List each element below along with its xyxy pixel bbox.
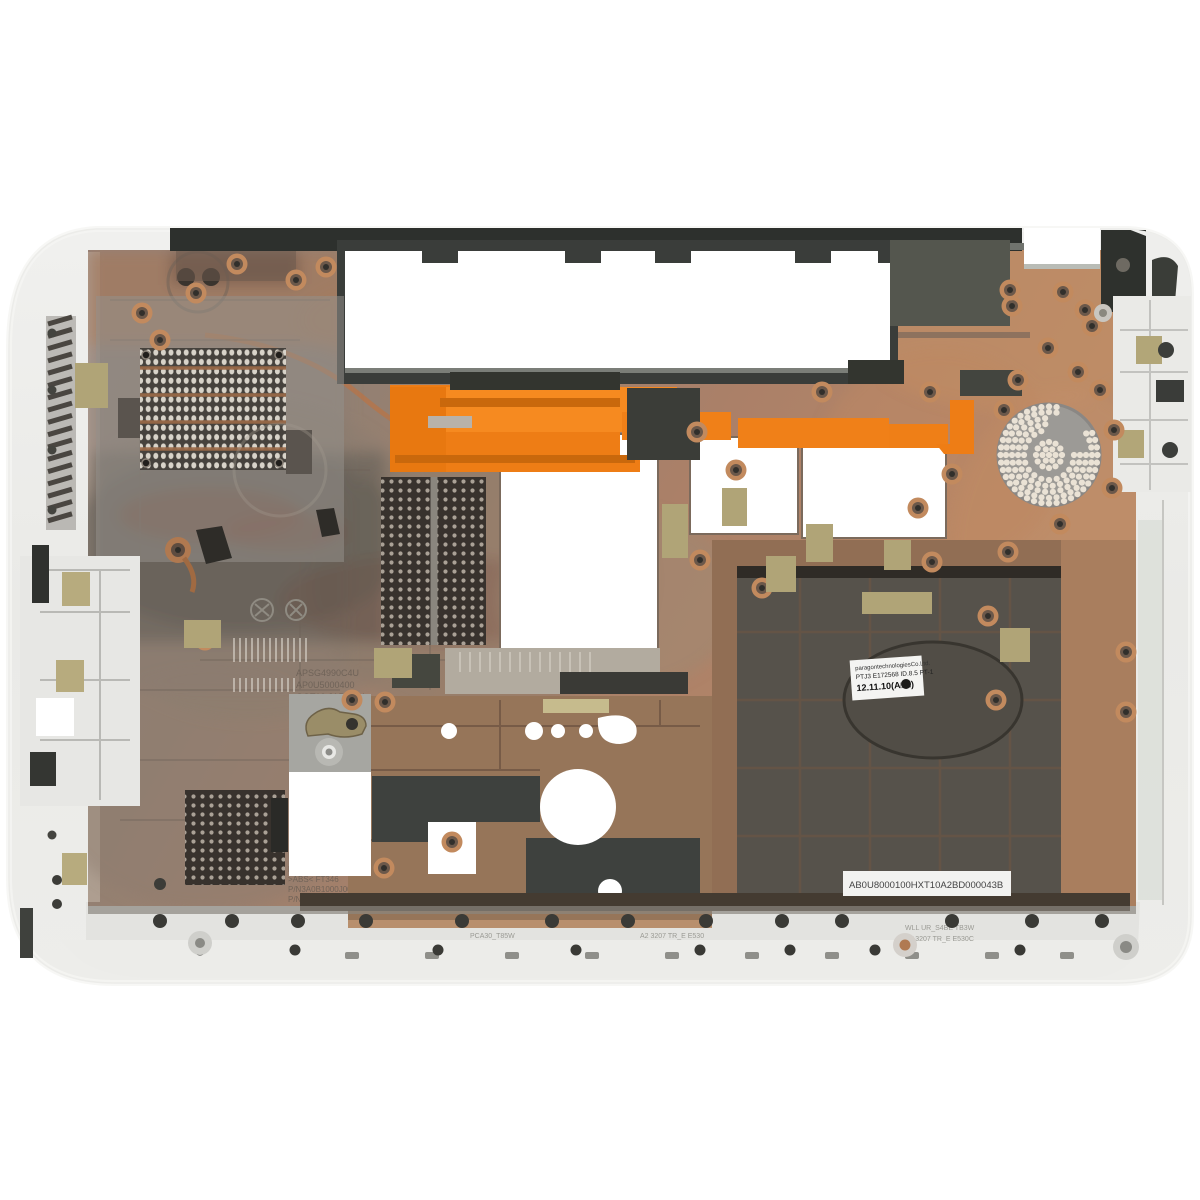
- svg-text:A2 3207 TR_E E530: A2 3207 TR_E E530: [640, 933, 704, 940]
- svg-text:AB0U8000100HXT10A2BD000043B: AB0U8000100HXT10A2BD000043B: [849, 880, 1003, 891]
- svg-text:>ABS< FT346: >ABS< FT346: [288, 875, 339, 884]
- svg-text:AP0U5000400: AP0U5000400: [296, 680, 355, 690]
- svg-text:WLL UR_S4BE TB3W: WLL UR_S4BE TB3W: [905, 925, 975, 932]
- svg-text:P/N3A0B1000J00: P/N3A0B1000J00: [288, 885, 352, 894]
- svg-text:PCA30_T85W: PCA30_T85W: [470, 933, 515, 940]
- svg-text:APSG4990C4U: APSG4990C4U: [296, 668, 359, 678]
